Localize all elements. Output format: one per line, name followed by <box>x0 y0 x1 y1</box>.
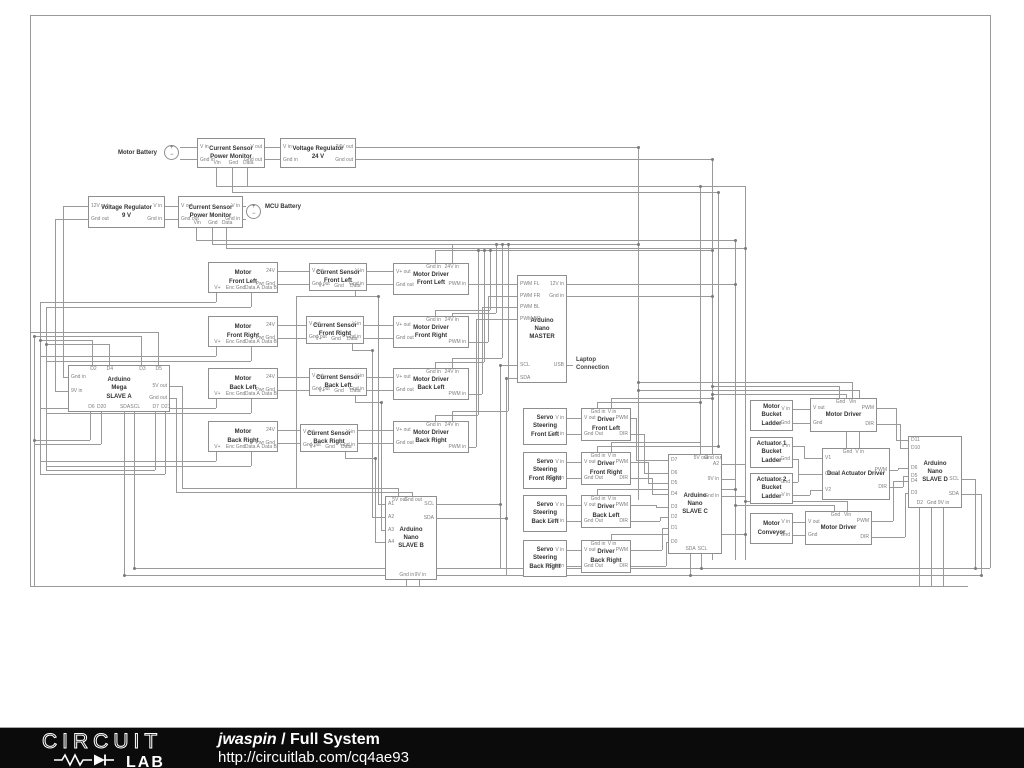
pin-label: SCL <box>130 405 140 410</box>
block-current-sensor-back-left: Current SensorBack LeftV outGnd outV inG… <box>309 368 367 396</box>
pin-label: SCL <box>520 363 530 368</box>
wire <box>890 470 898 471</box>
wire <box>722 496 745 497</box>
pin-label: V in <box>781 493 790 498</box>
wire <box>962 494 981 495</box>
pin-label: PWM <box>857 519 869 524</box>
pin-label: D7 <box>152 405 158 410</box>
junction-dot <box>39 339 42 342</box>
junction-dot <box>711 385 714 388</box>
wire <box>631 434 644 435</box>
pin-label: 24V in <box>445 318 459 323</box>
wire <box>919 508 920 586</box>
wire <box>484 250 485 362</box>
block-voltage-regulator-9v: Voltage Regulator9 V12V outGnd outV inGn… <box>88 196 165 228</box>
block-driver-back-left: DriverBack LeftGnd inV inV outGnd OutPWM… <box>581 495 631 528</box>
pin-label: D2 <box>917 501 923 506</box>
wire <box>648 462 649 483</box>
wire <box>900 424 901 448</box>
pin-label: V+ <box>214 286 220 291</box>
pin-label: Gnd in <box>71 375 86 380</box>
pin-label: Gnd <box>825 472 834 477</box>
wire <box>872 537 905 538</box>
pin-label: Gnd <box>808 533 817 538</box>
wire <box>296 296 378 297</box>
wire <box>278 390 309 391</box>
wire <box>165 206 178 207</box>
wire <box>660 517 668 518</box>
junction-dot <box>483 249 486 252</box>
wire <box>40 340 92 341</box>
pin-label: Data <box>341 445 352 450</box>
pin-label: 24V <box>266 323 275 328</box>
pin-label: 24V <box>266 375 275 380</box>
junction-dot <box>711 393 714 396</box>
pin-label: V out <box>584 503 596 508</box>
wire <box>877 408 896 409</box>
footer-bar: CIRCUIT LAB jwaspin / Full System http:/… <box>0 727 1024 768</box>
wire <box>900 448 908 449</box>
wire <box>611 398 612 408</box>
block-motor-back-left: MotorBack Left24VPwr GndV+Enc GndData AD… <box>208 368 278 399</box>
wire <box>931 508 932 586</box>
pin-label: V+ <box>214 445 220 450</box>
wire <box>34 336 35 586</box>
wire <box>232 192 718 193</box>
junction-dot <box>717 445 720 448</box>
logo-word-circuit: CIRCUIT <box>42 731 165 752</box>
wire <box>981 494 982 575</box>
wire <box>597 402 700 403</box>
wire <box>478 250 479 415</box>
wire <box>55 391 68 392</box>
wire <box>265 159 280 160</box>
wire <box>648 483 668 484</box>
block-motor-driver-front-right: Motor DriverFront RightGnd in24V inV+ ou… <box>393 316 469 348</box>
pin-label: PWM <box>616 416 628 421</box>
wire <box>435 250 436 263</box>
wire <box>452 411 453 421</box>
wire <box>278 325 306 326</box>
circuitlab-logo[interactable]: CIRCUIT LAB <box>42 731 165 768</box>
junction-dot <box>374 457 377 460</box>
pin-label: SDA <box>949 492 959 497</box>
pin-label: PWM <box>616 460 628 465</box>
wire <box>278 377 309 378</box>
wire <box>251 452 252 466</box>
wire <box>839 386 840 398</box>
pin-label: Gnd <box>927 501 936 506</box>
wire <box>251 347 252 361</box>
wire <box>356 147 638 148</box>
pin-label: Gnd in <box>426 423 441 428</box>
wire <box>469 284 517 285</box>
junction-dot <box>33 439 36 442</box>
pin-label: Data A <box>245 340 260 345</box>
wire <box>30 15 31 586</box>
pin-label: V in <box>352 322 361 327</box>
pin-label: V+ out <box>396 323 411 328</box>
pin-label: Gnd out <box>396 283 414 288</box>
pin-label: Gnd out <box>396 336 414 341</box>
pin-label: 9V in <box>938 501 949 506</box>
pin-label: Gnd <box>781 457 790 462</box>
pin-label: PWM in <box>449 392 467 397</box>
pin-label: A4 <box>388 540 394 545</box>
pin-label: 12V out <box>91 204 108 209</box>
wire <box>406 580 407 586</box>
junction-dot <box>45 343 48 346</box>
pin-label: Gnd <box>331 337 340 342</box>
wire <box>124 412 125 575</box>
pin-label: D4 <box>671 492 677 497</box>
wire <box>141 336 142 365</box>
pin-label: D10 <box>911 446 920 451</box>
block-motor-driver-conveyor: Motor DriverGndVinV outGndPWMDIR <box>805 511 872 545</box>
wire <box>34 440 90 441</box>
wire <box>358 430 393 431</box>
wire <box>243 206 246 207</box>
junction-dot <box>377 295 380 298</box>
junction-dot <box>637 146 640 149</box>
wire <box>898 468 908 469</box>
wire <box>375 542 385 543</box>
wire <box>30 15 990 16</box>
junction-dot <box>744 500 747 503</box>
pin-label: Vin <box>194 221 201 226</box>
pin-label: Vin <box>213 161 220 166</box>
wire <box>243 219 246 220</box>
pin-label: V in <box>555 460 564 465</box>
junction-dot <box>699 185 702 188</box>
pin-label: V out <box>309 322 321 327</box>
pin-label: D5 <box>156 367 162 372</box>
wire <box>435 362 484 363</box>
battery-minus: − <box>170 152 174 158</box>
wire <box>847 501 848 511</box>
pin-label: D6 <box>671 471 677 476</box>
pin-label: 24V in <box>445 423 459 428</box>
wire <box>158 332 159 365</box>
pin-label: V in <box>781 520 790 525</box>
pin-label: Gnd in <box>549 294 564 299</box>
pin-label: PWM FR <box>520 294 540 299</box>
block-actuator-2-bucket-ladder: Actuator 2Bucket LadderGndV in <box>750 473 793 504</box>
wire <box>226 228 227 248</box>
wire <box>165 412 166 474</box>
wire <box>196 228 197 240</box>
junction-dot <box>477 249 480 252</box>
wire <box>46 361 251 362</box>
pin-label: DIR <box>860 535 869 540</box>
block-servo-steering-back-right: ServoSteeringBack RightV inGnd in <box>523 540 567 577</box>
pin-label: Gnd out <box>91 217 109 222</box>
wire <box>810 490 822 491</box>
wire <box>631 462 648 463</box>
pin-label: D4 <box>911 479 917 484</box>
wire <box>381 402 382 530</box>
pin-label: PWM <box>616 503 628 508</box>
wire <box>34 444 101 445</box>
wire <box>452 313 496 314</box>
wire <box>722 479 735 480</box>
wire <box>496 244 497 313</box>
wire <box>46 344 109 345</box>
pin-label: Gnd in <box>399 573 414 578</box>
wire <box>452 244 453 263</box>
pin-label: PWM in <box>449 282 467 287</box>
pin-label: V in <box>200 145 209 150</box>
wire <box>251 293 252 307</box>
wire <box>356 159 712 160</box>
pin-label: Gnd out <box>396 388 414 393</box>
wire <box>216 168 217 186</box>
block-title: ArduinoNanoSLAVE B <box>386 497 436 579</box>
wire <box>712 394 846 395</box>
pin-label: Gnd <box>836 400 845 405</box>
wire <box>975 479 976 568</box>
pin-label: D2 <box>90 367 96 372</box>
junction-dot <box>505 517 508 520</box>
battery-label: MCU Battery <box>265 204 301 210</box>
pin-label: V in <box>781 444 790 449</box>
wire <box>278 284 309 285</box>
pin-label: SCL <box>698 547 708 552</box>
wire <box>212 228 213 244</box>
junction-dot <box>499 364 502 367</box>
wire <box>666 542 667 566</box>
junction-dot <box>495 243 498 246</box>
wire <box>872 521 893 522</box>
wire <box>55 219 88 220</box>
wire <box>378 296 379 504</box>
wire <box>631 550 662 551</box>
pin-label: Gnd Out <box>584 519 603 524</box>
pin-label: D2 <box>671 515 677 520</box>
pin-label: D7 <box>671 458 677 463</box>
laptop-connection-label: LaptopConnection <box>576 357 609 373</box>
pin-label: Data B <box>262 445 277 450</box>
page: Current SensorPower MonitorV inGnd inV o… <box>0 0 1024 768</box>
wire <box>55 219 56 391</box>
wire <box>644 434 645 473</box>
pin-label: D6 <box>88 405 94 410</box>
wire <box>567 505 581 506</box>
wire <box>506 378 507 575</box>
block-current-sensor-back-right: Current SensorBack RightV outGnd outV in… <box>300 424 358 452</box>
pin-label: Gnd <box>843 450 852 455</box>
wire <box>943 508 944 586</box>
pin-label: V out <box>813 406 825 411</box>
pin-label: V+ out <box>396 375 411 380</box>
pin-label: Gnd in <box>549 476 564 481</box>
junction-dot <box>711 249 714 252</box>
pin-label: 24V in <box>445 370 459 375</box>
wire <box>852 382 853 398</box>
wire <box>63 206 64 377</box>
battery-minus: − <box>252 211 256 217</box>
pin-label: V out <box>312 374 324 379</box>
wire <box>278 271 309 272</box>
wire <box>712 386 839 387</box>
block-current-sensor-power-monitor-1: Current SensorPower MonitorV inGnd inV o… <box>197 138 265 168</box>
junction-dot <box>505 377 508 380</box>
wire <box>567 550 581 551</box>
pin-label: Vin <box>849 400 856 405</box>
wire <box>482 307 483 394</box>
wire <box>182 488 398 489</box>
pin-label: Gnd Out <box>584 432 603 437</box>
pin-label: Data A <box>245 445 260 450</box>
junction-dot <box>133 567 136 570</box>
wire <box>490 250 491 310</box>
pin-label: Enc Gnd <box>226 392 245 397</box>
wire <box>46 307 251 308</box>
wire <box>452 358 502 359</box>
pin-label: V1 <box>825 456 831 461</box>
wire <box>567 418 581 419</box>
wire <box>502 244 503 358</box>
junction-dot <box>734 504 737 507</box>
wire <box>567 566 581 567</box>
wire <box>216 399 217 408</box>
junction-dot <box>371 349 374 352</box>
wire <box>372 517 385 518</box>
wire <box>216 452 217 461</box>
pin-label: PWM <box>862 406 874 411</box>
wire <box>745 186 746 560</box>
wire <box>700 186 701 454</box>
pin-label: V in <box>555 503 564 508</box>
wire <box>46 413 251 414</box>
wire <box>631 505 656 506</box>
block-voltage-regulator-24v: Voltage Regulator24 VV inGnd in24V outGn… <box>280 138 356 168</box>
pin-label: V in <box>283 145 292 150</box>
pin-label: Gnd in <box>549 519 564 524</box>
wire <box>367 271 393 272</box>
wire <box>355 402 381 403</box>
wire <box>352 350 372 351</box>
pin-label: V out <box>808 520 820 525</box>
pin-label: V out <box>584 460 596 465</box>
junction-dot <box>489 249 492 252</box>
schematic-url[interactable]: http://circuitlab.com/cq4ae93 <box>218 749 409 767</box>
wire <box>452 411 508 412</box>
pin-label: A2 <box>388 515 394 520</box>
junction-dot <box>744 247 747 250</box>
pin-label: V out <box>584 548 596 553</box>
pin-label: D4 <box>107 367 113 372</box>
pin-label: 24V <box>266 269 275 274</box>
wire <box>890 487 903 488</box>
wire <box>367 390 393 391</box>
wire <box>476 319 517 320</box>
wire <box>216 186 745 187</box>
wire <box>893 481 908 482</box>
wire <box>476 319 477 447</box>
pin-label: PWM FL <box>520 282 539 287</box>
wire <box>101 412 102 444</box>
wire <box>278 338 306 339</box>
pin-label: USB <box>554 363 564 368</box>
wire <box>793 522 805 523</box>
wire <box>500 365 501 568</box>
pin-label: V out <box>181 204 193 209</box>
pin-label: A2 <box>713 462 719 467</box>
pin-label: V in <box>555 416 564 421</box>
wire <box>905 493 906 537</box>
pin-label: Data <box>350 284 361 289</box>
wire <box>567 434 581 435</box>
pin-label: SDA <box>424 516 434 521</box>
pin-label: V out <box>303 430 315 435</box>
pin-label: V+ <box>318 284 324 289</box>
pin-label: Gnd in <box>283 158 298 163</box>
wire <box>212 244 638 245</box>
wire <box>652 478 653 494</box>
wire <box>46 466 251 467</box>
wire <box>216 293 217 302</box>
wire <box>896 440 908 441</box>
pin-label: D0 <box>671 540 677 545</box>
pin-label: Gnd in <box>426 318 441 323</box>
wire <box>631 521 660 522</box>
pin-label: Gnd in <box>426 265 441 270</box>
pin-label: V in <box>781 407 790 412</box>
wire <box>567 478 581 479</box>
wire <box>435 415 478 416</box>
wire <box>419 580 420 586</box>
wire <box>40 461 216 462</box>
wire <box>367 284 393 285</box>
pin-label: Gnd <box>831 513 840 518</box>
pin-label: SDA <box>685 547 695 552</box>
wire <box>469 447 476 448</box>
junction-dot <box>637 389 640 392</box>
wire <box>567 462 581 463</box>
pin-label: DIR <box>878 485 887 490</box>
junction-dot <box>700 567 703 570</box>
junction-dot <box>380 401 383 404</box>
wire <box>735 505 834 506</box>
pin-label: D21 <box>161 405 170 410</box>
pin-label: Enc Gnd <box>226 445 245 450</box>
wire <box>611 442 612 452</box>
wire <box>63 206 88 207</box>
junction-dot <box>744 533 747 536</box>
author-name[interactable]: jwaspin <box>218 731 277 748</box>
junction-dot <box>689 574 692 577</box>
pin-label: Enc Gnd <box>226 340 245 345</box>
wire <box>893 481 894 521</box>
wire <box>877 424 900 425</box>
wire <box>636 460 668 461</box>
pin-label: Gnd <box>813 421 822 426</box>
wire <box>40 302 216 303</box>
pin-label: PWM <box>875 468 887 473</box>
pin-label: V2 <box>825 488 831 493</box>
schematic-title: Full System <box>290 731 380 748</box>
battery-label: Motor Battery <box>118 150 157 156</box>
junction-dot <box>711 397 714 400</box>
pin-label: V+ <box>309 445 315 450</box>
wire <box>798 474 822 475</box>
junction-dot <box>734 488 737 491</box>
wire <box>155 412 156 470</box>
wire <box>990 15 991 568</box>
wire <box>638 147 639 500</box>
block-motor-bucket-ladder: MotorBucket LadderV inGnd <box>750 400 793 431</box>
